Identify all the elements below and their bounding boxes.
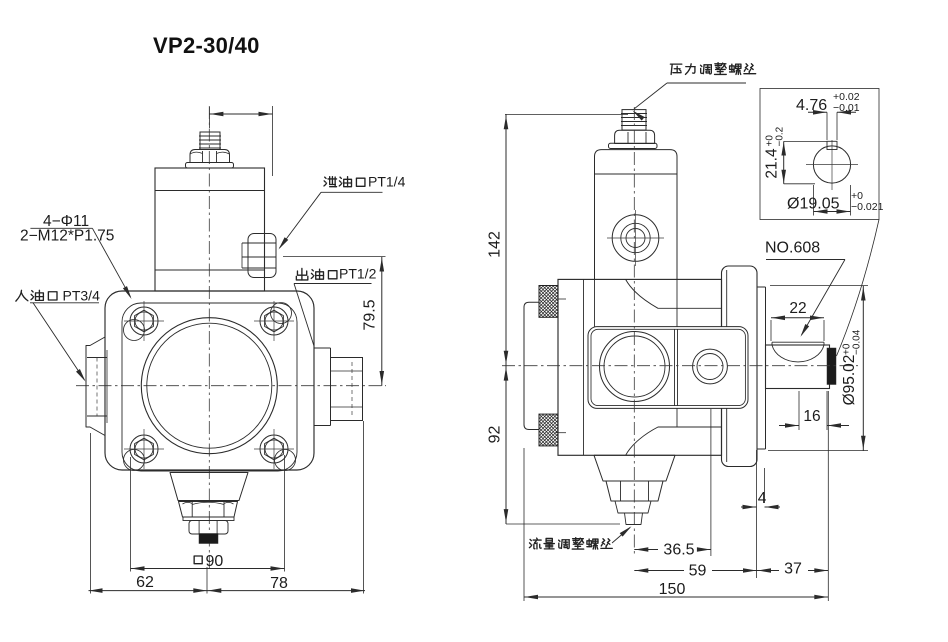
svg-text:PT3/4: PT3/4	[63, 288, 101, 304]
svg-text:PT1/4: PT1/4	[368, 174, 406, 190]
svg-text:142: 142	[487, 231, 504, 258]
svg-text:22: 22	[789, 300, 806, 317]
svg-text:16: 16	[803, 408, 820, 425]
svg-text:NO.608: NO.608	[765, 240, 820, 257]
svg-text:62: 62	[136, 574, 154, 591]
svg-text:−0.2: −0.2	[775, 126, 786, 146]
svg-text:78: 78	[270, 575, 288, 592]
svg-text:21.4: 21.4	[764, 148, 781, 179]
svg-text:92: 92	[487, 426, 504, 444]
svg-text:Ø19.05: Ø19.05	[787, 196, 840, 213]
svg-text:90: 90	[206, 553, 224, 570]
svg-text:−0.01: −0.01	[833, 102, 860, 114]
svg-text:150: 150	[659, 581, 686, 598]
svg-text:4.76: 4.76	[796, 97, 827, 114]
svg-text:36.5: 36.5	[663, 542, 694, 559]
svg-text:−0.021: −0.021	[851, 201, 884, 213]
svg-text:−0.04: −0.04	[852, 329, 863, 355]
svg-text:79.5: 79.5	[362, 299, 379, 330]
svg-text:59: 59	[689, 563, 707, 580]
svg-text:Ø95.02: Ø95.02	[841, 355, 858, 406]
svg-text:37: 37	[784, 561, 802, 578]
svg-text:PT1/2: PT1/2	[339, 266, 377, 282]
svg-text:VP2-30/40: VP2-30/40	[153, 33, 260, 58]
svg-text:4: 4	[758, 490, 767, 507]
